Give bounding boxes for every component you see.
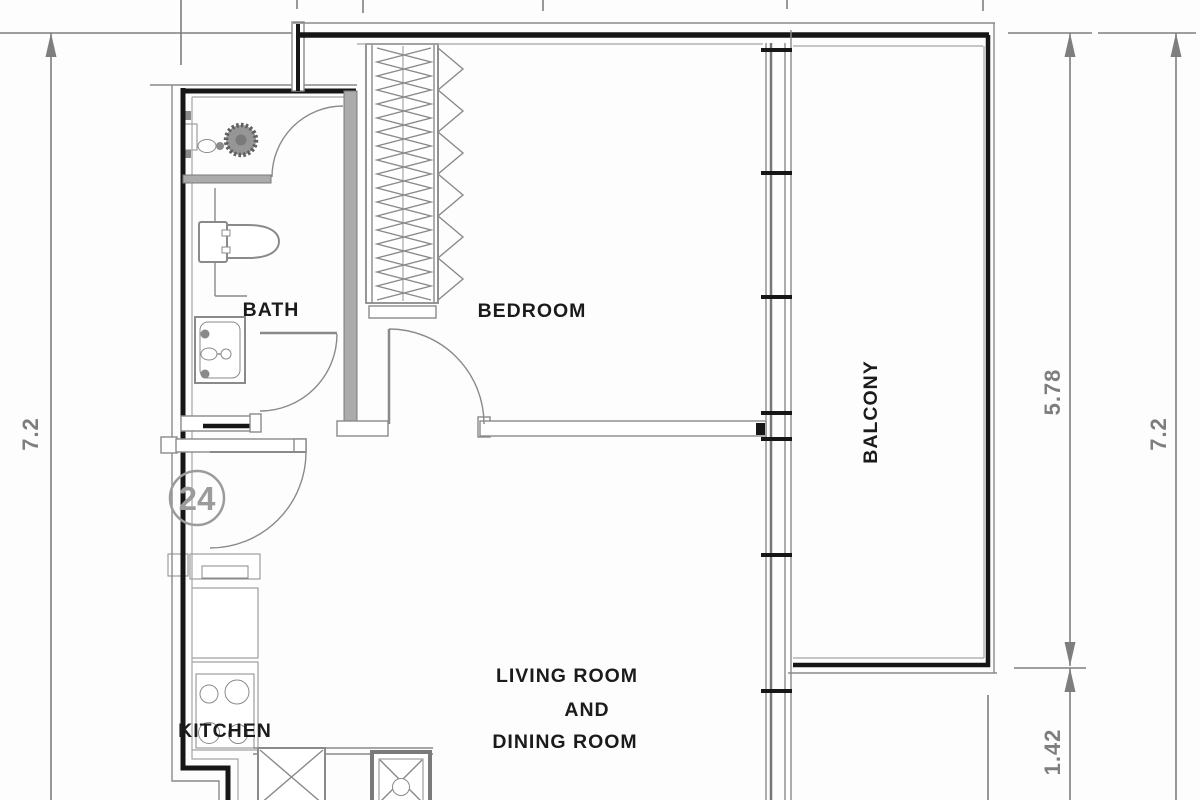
shower-partition <box>183 175 271 183</box>
cabinet-crossed <box>258 748 325 800</box>
arrow-down-balcony <box>1065 642 1076 666</box>
living-label-line1: LIVING ROOM <box>496 665 638 687</box>
hanger-3 <box>438 132 463 174</box>
vanity-faucet-knob <box>221 349 231 359</box>
shower-door-swing <box>272 106 343 177</box>
burner-2 <box>225 680 249 704</box>
shower-mixer-body <box>185 124 197 150</box>
balcony-label: BALCONY <box>860 360 882 463</box>
toilet-bowl <box>227 225 279 258</box>
kitchen-fixtures <box>168 554 433 800</box>
vanity-knob-bottom <box>201 370 210 379</box>
bedroom-label: BEDROOM <box>478 300 587 322</box>
unit-number-badge: 24 <box>170 471 224 525</box>
bath-fixtures <box>183 111 279 383</box>
vanity-faucet <box>201 348 217 360</box>
living-label-line2: AND <box>564 699 609 721</box>
hanger-6 <box>438 258 463 300</box>
toilet-hinge-top <box>222 230 230 236</box>
hanger-4 <box>438 174 463 216</box>
wardrobe-base-wall <box>369 306 436 318</box>
dim-balcony-height: 5.78 <box>1040 369 1065 416</box>
toilet-hinge-bottom <box>222 247 230 253</box>
hanger-1 <box>438 48 463 90</box>
floor-plan: 24 BATH BEDROOM BALCONY KITCHEN LIVING R… <box>0 0 1200 800</box>
vanity-knob-top <box>201 330 210 339</box>
vestibule-wall-foot <box>161 437 177 453</box>
kitchen-label: KITCHEN <box>178 720 272 742</box>
hanger-5 <box>438 216 463 258</box>
mullion-5 <box>761 437 792 441</box>
kitchen-counter <box>192 588 258 658</box>
bedroom-door-swing <box>389 329 484 424</box>
shower-knob <box>216 142 224 150</box>
sink-drain <box>393 779 410 796</box>
mullion-4 <box>761 411 792 415</box>
dim-left-height: 7.2 <box>18 417 43 451</box>
arrow-up-right <box>1171 33 1182 57</box>
floor-plan-svg: 24 BATH BEDROOM BALCONY KITCHEN LIVING R… <box>0 0 1200 800</box>
mullion-1 <box>761 48 792 52</box>
bath-door-jamb <box>250 414 261 432</box>
bath-east-wall <box>344 91 357 421</box>
hanger-2 <box>438 90 463 132</box>
bath-door-swing <box>260 334 337 411</box>
mullion-7 <box>761 689 792 693</box>
room-labels: BATH BEDROOM BALCONY KITCHEN LIVING ROOM… <box>178 299 882 753</box>
vestibule-wall-end <box>294 439 306 452</box>
balcony-wall <box>793 35 988 665</box>
unit-number-text: 24 <box>179 480 216 517</box>
toilet-cistern <box>199 222 227 262</box>
divider-wall-end-tick <box>756 423 765 435</box>
arrow-up-left <box>46 33 57 57</box>
arrow-up-below-balcony <box>1065 668 1076 692</box>
vestibule-wall <box>176 439 306 452</box>
mullion-2 <box>761 171 792 175</box>
shower-drain-center <box>236 135 247 146</box>
shower-handle <box>198 140 216 153</box>
living-label-line3: DINING ROOM <box>492 731 637 753</box>
dim-below-balcony: 1.42 <box>1040 729 1065 776</box>
wardrobe <box>366 44 463 318</box>
bath-south-wall <box>181 416 260 431</box>
mullion-3 <box>761 295 792 299</box>
divider-wall-right <box>480 421 766 436</box>
fridge-inner <box>202 566 248 578</box>
dim-right-height: 7.2 <box>1146 417 1171 451</box>
bath-label: BATH <box>243 299 300 321</box>
divider-wall-left <box>337 421 388 436</box>
mullion-6 <box>761 553 792 557</box>
burner-1 <box>200 685 218 703</box>
arrow-up-balcony <box>1065 33 1076 57</box>
